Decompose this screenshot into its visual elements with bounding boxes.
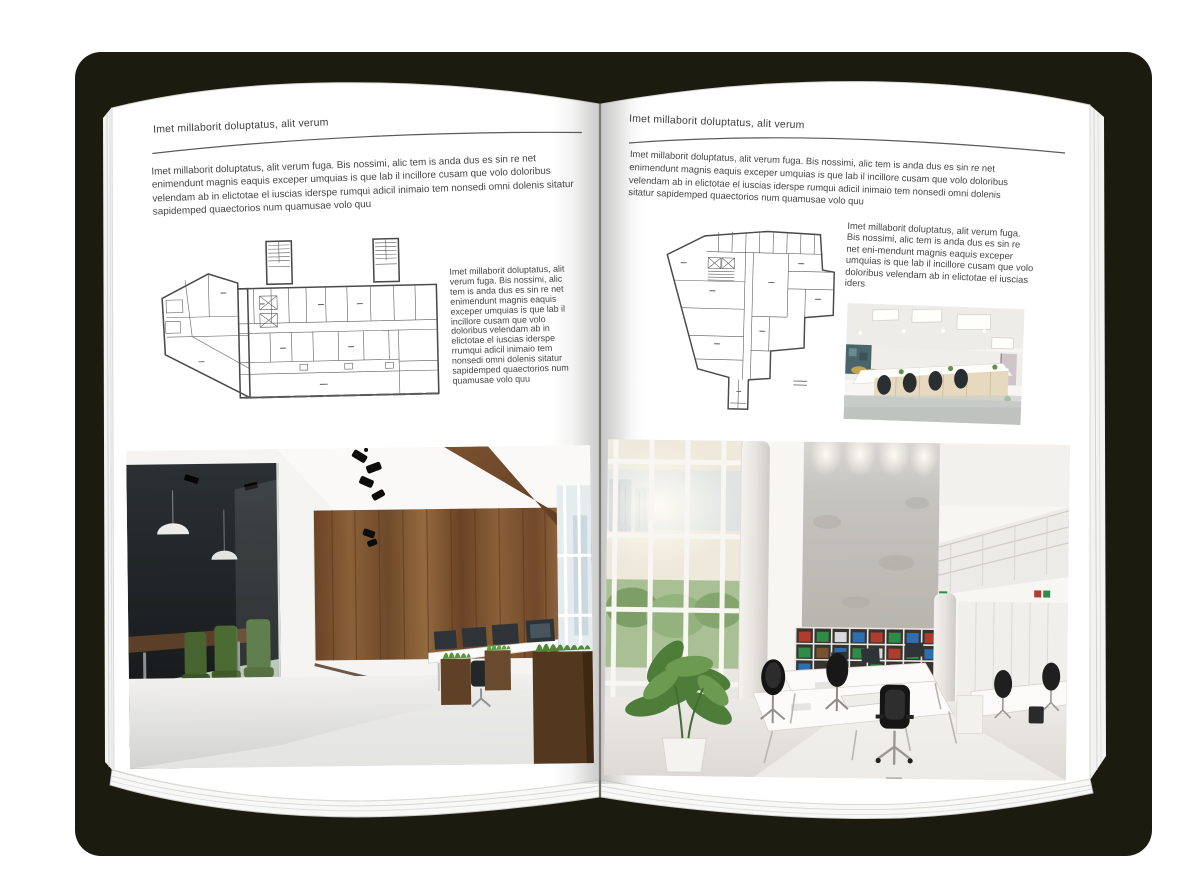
right-office-photo-small <box>843 303 1025 425</box>
left-office-photo <box>126 445 594 769</box>
right-plan-caption: Imet millaborit doluptatus, alit verum f… <box>845 220 1036 297</box>
plan-partitions <box>671 229 835 411</box>
right-office-photo-large <box>604 439 1070 781</box>
left-floor-plan <box>151 230 447 419</box>
concrete-wall <box>802 439 941 649</box>
page-stack-right-edge <box>1090 105 1106 780</box>
waste-bin <box>1029 706 1044 723</box>
right-floor-plan <box>648 220 839 420</box>
left-plan-caption: Imet millaborit doluptatus, alit verum f… <box>449 264 578 386</box>
magazine-mockup-stage: Imet millaborit doluptatus, alit verum I… <box>0 0 1200 891</box>
